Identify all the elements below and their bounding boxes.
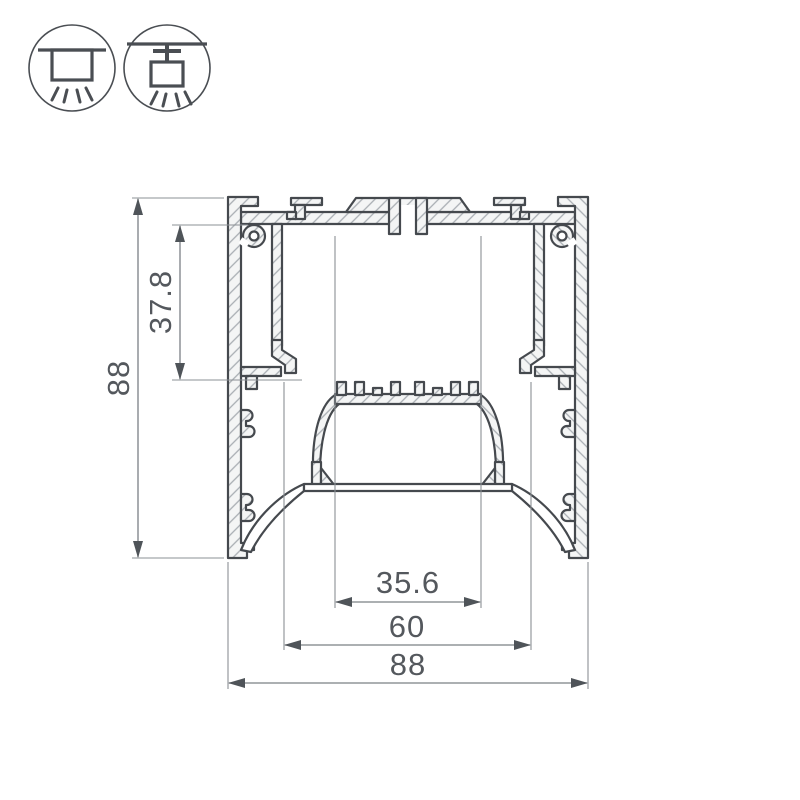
dim-text-plate-width: 35.6	[376, 565, 440, 600]
pendant-mount-icon	[124, 25, 210, 111]
drawing-canvas: 88 37.8 35.6 60	[0, 0, 800, 800]
mounting-icons	[29, 25, 210, 111]
dim-overall-height: 88	[101, 198, 224, 558]
surface-mount-icon	[29, 25, 115, 111]
light-rays	[151, 92, 191, 106]
screw-post-left	[389, 198, 400, 234]
dim-text-overall-height: 88	[101, 360, 136, 396]
dim-text-inner-depth: 37.8	[143, 270, 178, 334]
light-rays	[52, 88, 92, 102]
dim-text-overall-width: 88	[390, 647, 426, 682]
dim-text-opening-width: 60	[389, 609, 425, 644]
screw-post-right	[416, 198, 427, 234]
profile-right-half	[477, 197, 588, 558]
screw-slot	[400, 205, 416, 234]
dimensions: 88 37.8 35.6 60	[101, 198, 588, 689]
profile-section	[228, 197, 588, 558]
profile-drawing-svg: 88 37.8 35.6 60	[0, 0, 800, 800]
dim-plate-width: 35.6	[335, 236, 481, 608]
